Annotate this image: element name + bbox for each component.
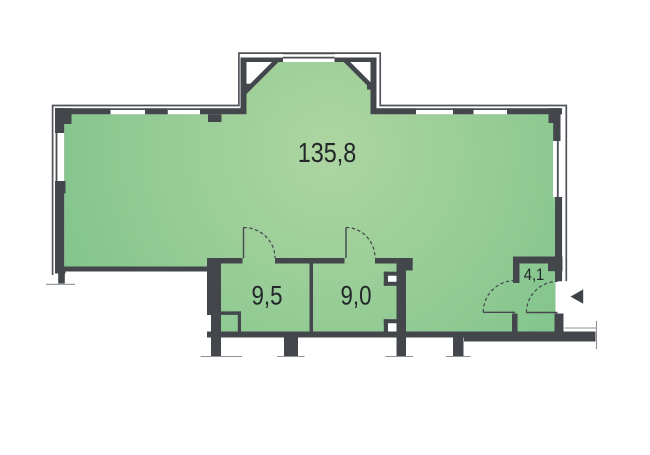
svg-text:135,8: 135,8	[298, 137, 357, 168]
svg-text:4,1: 4,1	[524, 266, 545, 284]
svg-text:9,5: 9,5	[252, 281, 283, 311]
svg-text:9,0: 9,0	[341, 281, 372, 311]
